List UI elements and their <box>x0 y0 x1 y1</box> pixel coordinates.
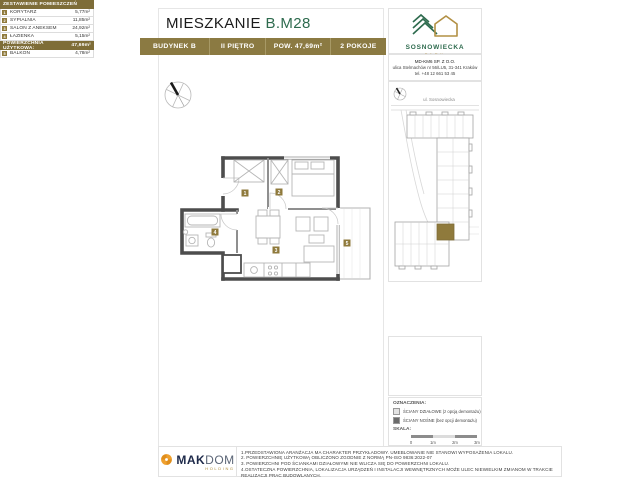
info-rooms: 2 POKOJE <box>330 38 386 55</box>
table-row-balkon: 5 BALKON 4,78m² <box>0 50 94 58</box>
installation-shaft <box>223 255 241 273</box>
table-total-row: POWIERZCHNIA UŻYTKOWA: 47,69m² <box>0 41 94 50</box>
brand-mak: MAK <box>176 453 205 467</box>
spacer-box <box>388 336 482 396</box>
info-bar: BUDYNEK B II PIĘTRO POW. 47,69m² 2 POKOJ… <box>140 38 386 55</box>
scale-segment <box>433 435 455 438</box>
room-number-badge: 5 <box>2 51 7 56</box>
floor-plan: 1 2 3 4 5 <box>158 56 382 356</box>
info-floor: II PIĘTRO <box>209 38 265 55</box>
bearing-wall-swatch <box>393 417 400 424</box>
compass-icon <box>165 82 191 108</box>
room-number-badge: 1 <box>2 10 7 15</box>
table-row-salon: 3 SALON Z ANEKSEM 24,92m² <box>0 25 94 33</box>
legend-title: OZNACZENIA: <box>393 401 477 406</box>
total-label: POWIERZCHNIA UŻYTKOWA: <box>3 41 71 51</box>
disclaimer-box: 1.PRZEDSTAWIONA ARANŻACJA MA CHARAKTER P… <box>237 446 562 477</box>
marker-salon: 3 <box>273 247 280 255</box>
title-label: MIESZKANIE <box>166 15 261 32</box>
info-building: BUDYNEK B <box>140 38 209 55</box>
marker-lazienka: 4 <box>212 229 219 237</box>
svg-text:2: 2 <box>278 190 281 196</box>
room-number-badge: 4 <box>2 34 7 39</box>
map-compass-icon <box>394 88 406 100</box>
doors <box>221 178 340 230</box>
site-map-box: ul. Sosnowiecka <box>388 81 482 282</box>
developer-address-box: MD-KM6 SP. Z O.O. ulica Stelmachów nr 56… <box>388 54 482 81</box>
scale-segment <box>455 435 477 438</box>
highlighted-unit <box>437 224 454 240</box>
room-number-badge: 2 <box>2 18 7 23</box>
info-area: POW. 47,69m² <box>265 38 330 55</box>
developer-logo-box: SOSNOWIECKA PARK <box>388 8 482 54</box>
exterior-walls <box>182 158 338 279</box>
scale-segment <box>411 435 433 438</box>
furniture <box>183 160 334 277</box>
company-address: ulica Stelmachów nr 56/LU5, 31-341 Krakó… <box>389 65 481 71</box>
scale-title: SKALA: <box>393 427 477 432</box>
partition-wall-swatch <box>393 408 400 415</box>
site-map: ul. Sosnowiecka <box>389 82 481 281</box>
svg-text:3: 3 <box>275 248 278 254</box>
table-row-sypialnia: 2 SYPIALNIA 11,85m² <box>0 17 94 25</box>
total-value: 47,69m² <box>71 43 91 48</box>
buildings <box>395 112 473 269</box>
legend-box: OZNACZENIA: ŚCIANY DZIAŁOWE (z opcją dem… <box>388 397 482 446</box>
legend-item-bearing: ŚCIANY NOŚNE (bez opcji demontażu) <box>393 417 477 424</box>
marker-balkon: 5 <box>344 240 351 248</box>
page-title: MIESZKANIE B.M28 <box>166 15 311 32</box>
company-phone: tel. +48 12 661 53 45 <box>389 71 481 77</box>
table-row-korytarz: 1 KORYTARZ 5,77m² <box>0 9 94 17</box>
marker-korytarz: 1 <box>242 190 249 198</box>
brand-dom: DOM <box>205 453 235 467</box>
street-label: ul. Sosnowiecka <box>423 97 455 102</box>
scale-bar: 0 1m 2m 3m <box>411 435 477 447</box>
apartment-card-page: MIESZKANIE B.M28 BUDYNEK B II PIĘTRO POW… <box>0 0 640 480</box>
makdom-logo-box: MAKDOM HOLDING <box>158 446 237 477</box>
rooms-table: ZESTAWIENIE POMIESZCZEŃ 1 KORYTARZ 5,77m… <box>0 0 94 53</box>
marker-sypialnia: 2 <box>276 189 283 197</box>
room-number-badge: 3 <box>2 26 7 31</box>
svg-text:1: 1 <box>244 191 247 197</box>
svg-text:5: 5 <box>346 241 349 247</box>
room-markers: 1 2 3 4 5 <box>212 189 351 255</box>
partition-walls <box>237 158 338 253</box>
disclaimer-line: 4.OSTATECZNA POWIERZCHNIA, LOKALIZACJA U… <box>241 467 557 479</box>
sosnowiecka-park-logo-icon <box>405 12 465 38</box>
legend-item-partition: ŚCIANY DZIAŁOWE (z opcją demontażu) <box>393 408 477 415</box>
unit-code: B.M28 <box>265 15 310 32</box>
brand-name: SOSNOWIECKA <box>389 44 481 51</box>
rooms-table-title: ZESTAWIENIE POMIESZCZEŃ <box>0 0 94 9</box>
svg-text:4: 4 <box>214 230 217 236</box>
makdom-pinwheel-icon <box>160 453 173 466</box>
